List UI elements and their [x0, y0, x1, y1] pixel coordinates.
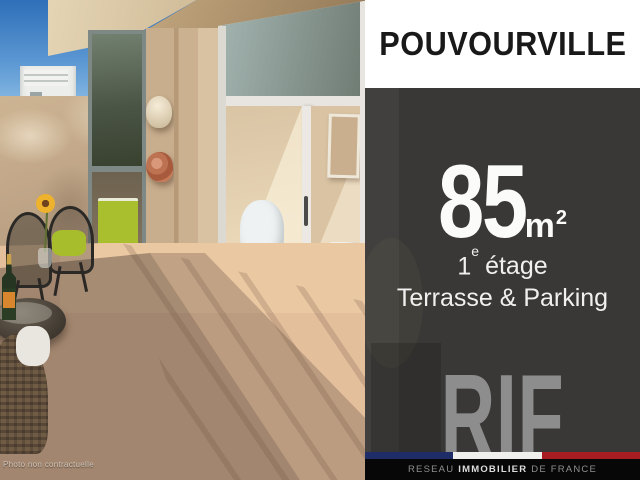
tagline-immobilier: IMMOBILIER — [458, 464, 527, 475]
french-flag-stripe — [365, 452, 640, 459]
flag-red-segment — [542, 452, 640, 459]
door-frame-bar — [218, 96, 370, 106]
bottle-label — [3, 292, 15, 308]
floor-label: étage — [485, 252, 548, 280]
door-handle — [304, 196, 308, 226]
wall-sconce-light — [146, 96, 172, 128]
location-title: POUVOURVILLE — [379, 25, 626, 63]
green-cushion — [52, 230, 86, 256]
sofa-cushion — [16, 326, 50, 366]
floor-ordinal: e — [471, 243, 479, 259]
area-unit: m2 — [525, 209, 566, 243]
listing-card: Photo non contractuelle POUVOURVILLE 85m… — [0, 0, 640, 480]
glass-vase — [38, 248, 52, 268]
terracotta-ornament — [146, 152, 173, 182]
picture-frame — [327, 114, 361, 179]
flag-white-segment — [453, 452, 542, 459]
brand-tagline: RESEAU IMMOBILIER DE FRANCE — [365, 459, 640, 480]
neighbor-railing — [24, 70, 68, 86]
door-glass — [92, 34, 142, 166]
photo-disclaimer: Photo non contractuelle — [3, 460, 94, 469]
floor-info: 1eétage — [365, 252, 640, 281]
flag-blue-segment — [365, 452, 453, 459]
header-band: POUVOURVILLE — [365, 0, 640, 88]
tagline-reseau: RESEAU — [408, 464, 454, 475]
area-value: 85 — [438, 150, 526, 254]
features-info: Terrasse & Parking — [365, 284, 640, 313]
info-panel: 85m2 1eétage Terrasse & Parking RIF RESE… — [365, 88, 640, 480]
tagline-de-france: DE FRANCE — [531, 464, 597, 475]
sunflower — [36, 194, 55, 213]
surface-area: 85m2 — [365, 150, 640, 254]
floor-number: 1 — [457, 252, 471, 280]
